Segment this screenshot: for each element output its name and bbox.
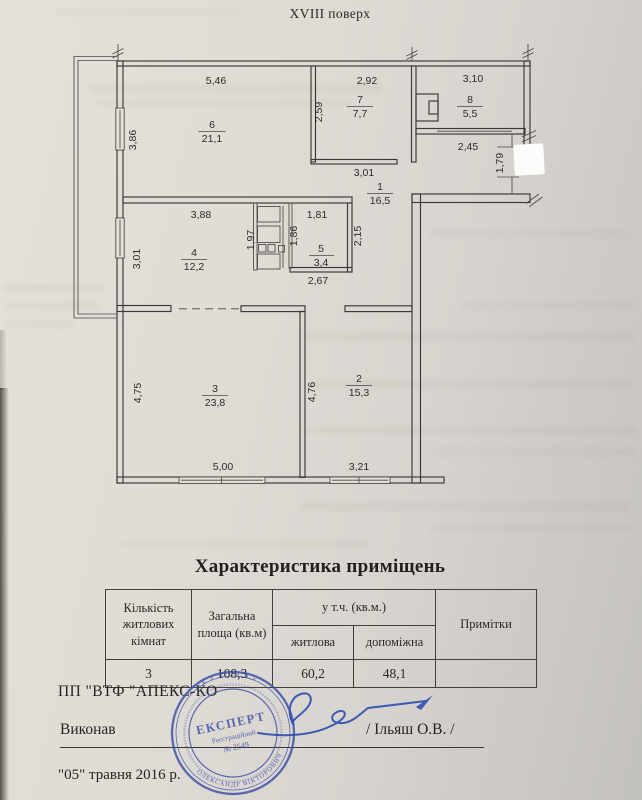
room1-area: 16,5 xyxy=(370,195,391,207)
dim-room3-bottom: 5,00 xyxy=(213,461,234,473)
scanned-document-page: XVIII поверх xyxy=(0,0,642,800)
room3-number: 3 xyxy=(212,383,218,395)
room-label-3: 3 23,8 xyxy=(202,383,228,409)
room3-area: 23,8 xyxy=(205,397,226,409)
cell-notes xyxy=(436,660,537,688)
dim-room6-left: 3,86 xyxy=(127,130,139,151)
dim-room7-top: 2,92 xyxy=(357,75,378,87)
dim-room5-top: 1,81 xyxy=(307,209,328,221)
cell-auxiliary-area: 48,1 xyxy=(354,660,436,688)
room-label-4: 4 12,2 xyxy=(181,247,207,273)
room2-number: 2 xyxy=(356,373,362,385)
window-room6-left xyxy=(116,108,124,150)
room-label-7: 7 7,7 xyxy=(347,94,373,120)
room7-area: 7,7 xyxy=(353,108,368,120)
dim-room2-left: 4,76 xyxy=(306,382,318,403)
col-header-total-area: Загальна площа (кв.м) xyxy=(192,590,273,660)
dim-closet-left: 1,97 xyxy=(245,230,257,251)
col-header-including: у т.ч. (кв.м.) xyxy=(273,590,436,626)
window-room4-left xyxy=(116,218,124,258)
dim-room7-left: 2,59 xyxy=(313,102,325,123)
dimension-labels: 5,46 2,92 3,10 3,01 2,45 3,88 1,81 2,67 … xyxy=(127,73,506,473)
document-date: "05" травня 2016 р. xyxy=(58,767,181,784)
page-edge-shadow-soft xyxy=(0,330,7,390)
stamp-arc-bottom: ОЛЕКСАНДР ВІКТОРОВИЧ xyxy=(194,751,289,797)
col-header-notes: Примітки xyxy=(436,590,537,660)
dim-room4-top: 3,88 xyxy=(191,209,212,221)
room7-number: 7 xyxy=(357,94,363,106)
room1-number: 1 xyxy=(377,181,383,193)
dim-hall-right: 2,15 xyxy=(352,226,364,247)
white-patch xyxy=(513,143,545,176)
room4-number: 4 xyxy=(191,247,197,259)
room8-area: 5,5 xyxy=(463,108,478,120)
dim-room5-bottom: 2,67 xyxy=(308,275,329,287)
svg-text:ОЛЕКСАНДР ВІКТОРОВИЧ: ОЛЕКСАНДР ВІКТОРОВИЧ xyxy=(194,751,289,797)
floor-plan: 5,46 2,92 3,10 3,01 2,45 3,88 1,81 2,67 … xyxy=(0,0,642,548)
room-label-8: 8 5,5 xyxy=(457,94,483,120)
room-label-6: 6 21,1 xyxy=(198,119,226,145)
dim-room5-left: 1,86 xyxy=(288,226,300,247)
dim-room8-bottom: 2,45 xyxy=(458,141,479,153)
wall-break-marks xyxy=(113,44,543,207)
room6-area: 21,1 xyxy=(202,133,223,145)
dim-room4-left: 3,01 xyxy=(131,249,143,270)
executor-name: / Ільяш О.В. / xyxy=(366,721,455,739)
dim-room3-left: 4,75 xyxy=(132,383,144,404)
cell-living-area: 60,2 xyxy=(273,660,354,688)
balcony-outline xyxy=(74,57,117,319)
room5-number: 5 xyxy=(318,243,324,255)
dim-room7-bottom: 3,01 xyxy=(354,167,375,179)
walls xyxy=(117,61,530,483)
stamp-title: ЕКСПЕРТ xyxy=(195,709,267,737)
company-name: ПП "ВТФ "АПЕКС-КО xyxy=(58,683,218,701)
col-header-room-count: Кількість житлових кімнат xyxy=(106,590,192,660)
table-title: Характеристика приміщень xyxy=(100,556,540,578)
dim-room6-top: 5,46 xyxy=(206,75,227,87)
col-header-living: житлова xyxy=(273,626,354,660)
room-label-1: 1 16,5 xyxy=(367,181,393,207)
performed-by-label: Виконав xyxy=(60,721,116,739)
dim-room8-top: 3,10 xyxy=(463,73,484,85)
room-characteristics-table: Кількість житлових кімнат Загальна площа… xyxy=(105,589,537,688)
room6-number: 6 xyxy=(209,119,215,131)
room-label-5: 5 3,4 xyxy=(309,243,334,269)
window-room3-bottom xyxy=(179,477,265,484)
stamp-registry-label: Реєстраційний xyxy=(211,728,256,745)
room5-area: 3,4 xyxy=(314,257,329,269)
col-header-auxiliary: допоміжна xyxy=(354,626,436,660)
room4-area: 12,2 xyxy=(184,261,205,273)
dim-entry-door: 1,79 xyxy=(494,153,506,174)
room8-number: 8 xyxy=(467,94,473,106)
room-label-2: 2 15,3 xyxy=(346,373,372,399)
room2-area: 15,3 xyxy=(349,387,370,399)
kitchen-units xyxy=(254,203,293,270)
page-edge-shadow xyxy=(0,388,9,800)
signature-line xyxy=(60,747,484,748)
window-room2-bottom xyxy=(330,477,390,484)
dim-room2-bottom: 3,21 xyxy=(349,461,370,473)
duct xyxy=(416,94,438,121)
